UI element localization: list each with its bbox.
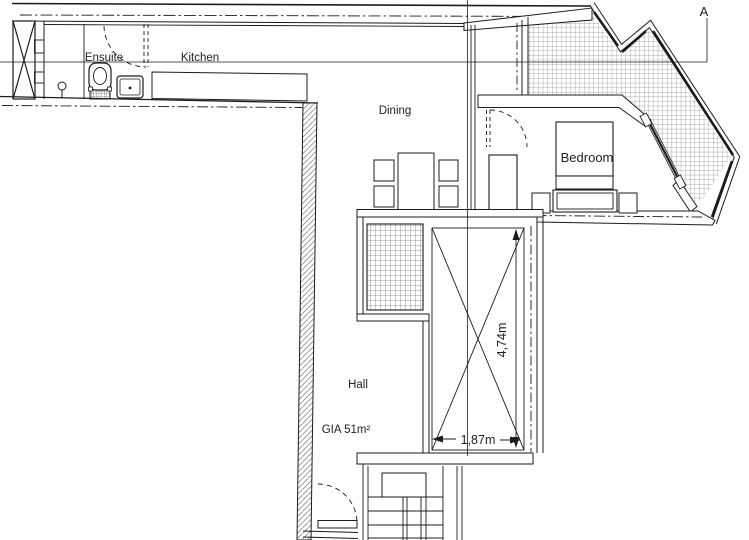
dining-table [398, 153, 434, 213]
label-kitchen: Kitchen [181, 52, 219, 64]
dining-chair [374, 186, 394, 207]
floor-plan-drawing: Ensuite Kitchen Dining Bedroom Hall GIA … [0, 0, 749, 540]
basin [117, 76, 143, 98]
dim-void-width: 1,87m [461, 433, 496, 447]
shaft-hatch [367, 224, 423, 310]
dining-chair [439, 186, 458, 207]
floor-plan: Ensuite Kitchen Dining Bedroom Hall GIA … [0, 0, 749, 540]
label-hall: Hall [348, 379, 368, 391]
entrance-door-leaf [318, 521, 357, 529]
label-bedroom: Bedroom [561, 150, 614, 165]
label-ensuite: Ensuite [85, 52, 123, 64]
dining-chair [374, 160, 394, 181]
dim-void-height: 4,74m [495, 323, 509, 358]
kitchen-counter [152, 72, 307, 101]
label-dining: Dining [379, 105, 412, 117]
bed [553, 122, 617, 212]
wardrobe [489, 155, 517, 212]
toilet [89, 63, 112, 99]
label-section-a: A [700, 4, 709, 19]
label-gia: GIA 51m² [322, 424, 371, 436]
dining-chair [439, 160, 458, 181]
